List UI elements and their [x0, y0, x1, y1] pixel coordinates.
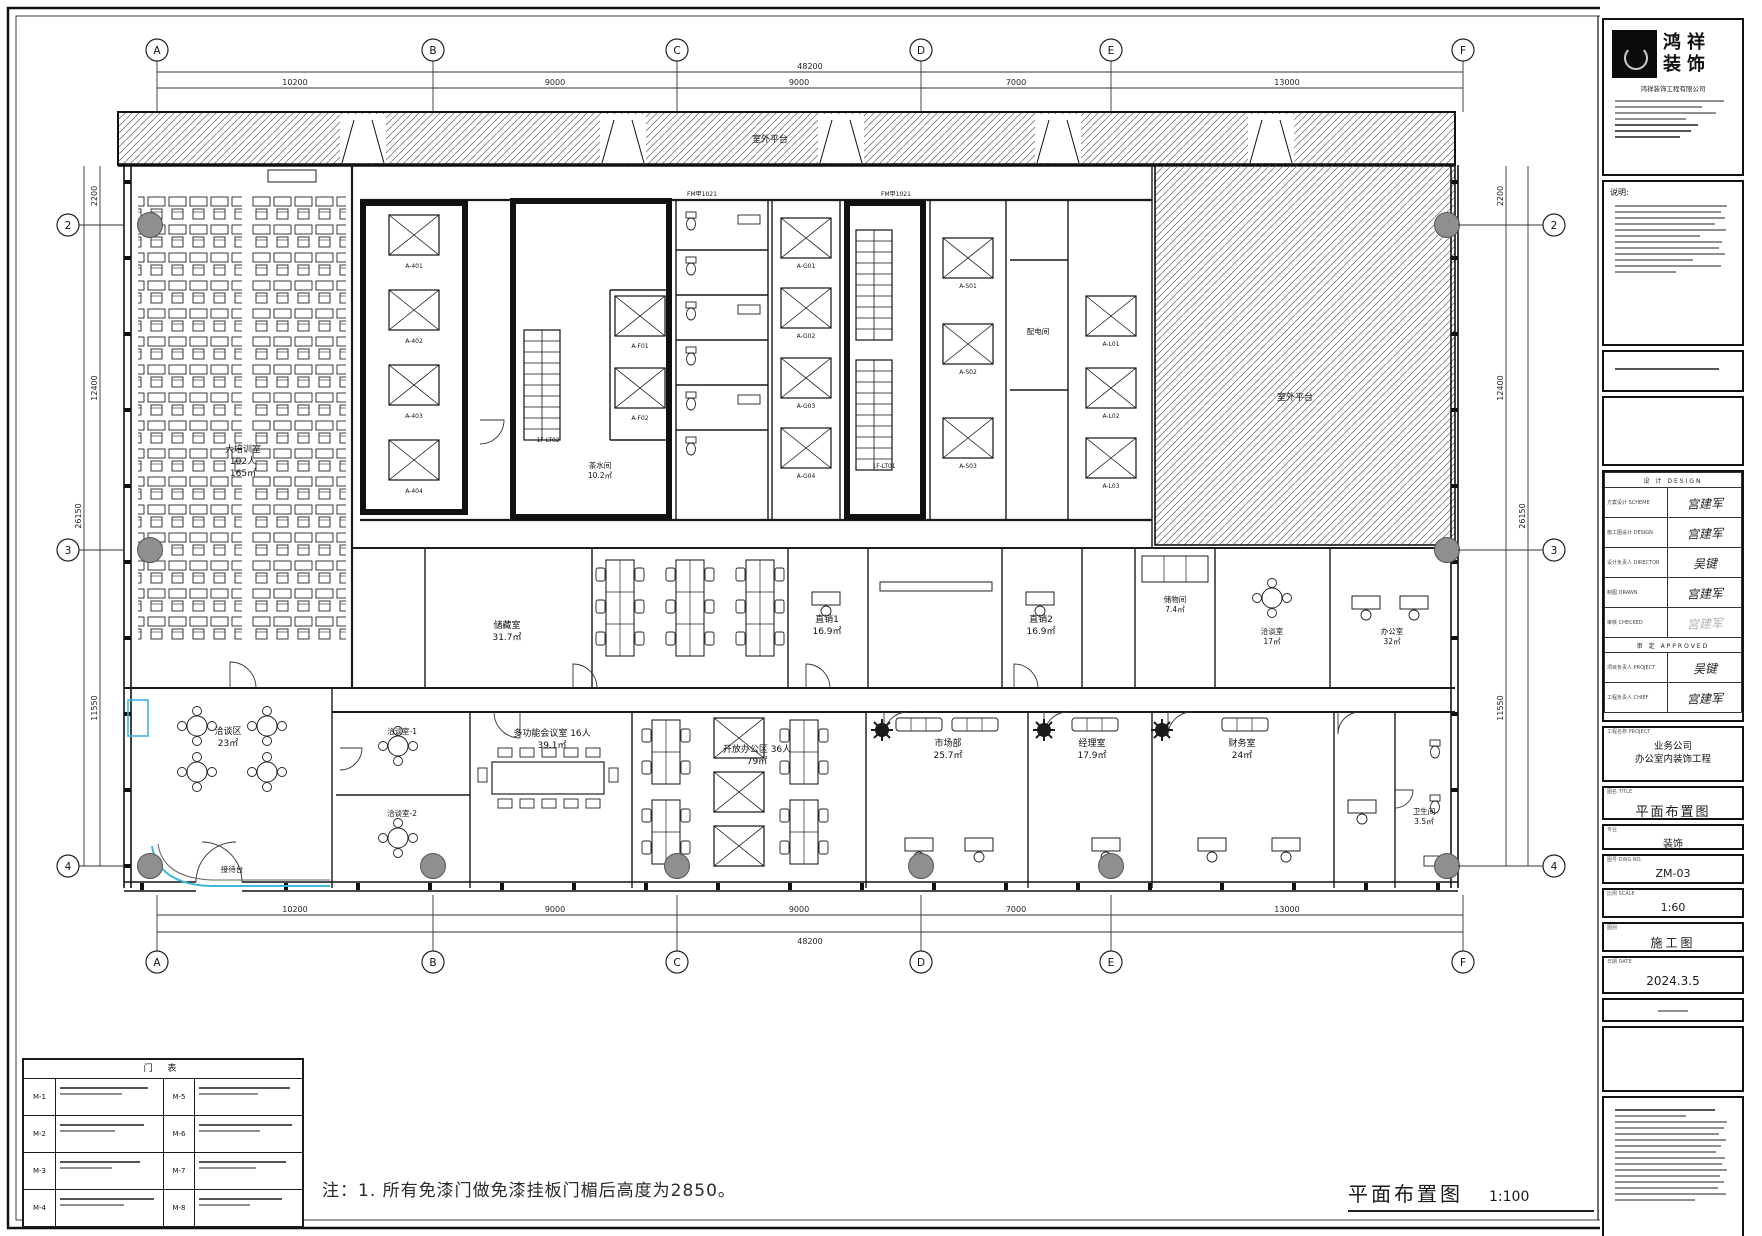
project-name-block: 工程名称 PROJECT 业务公司 办公室内装饰工程	[1602, 726, 1744, 782]
field-label: 比例 SCALE	[1607, 892, 1635, 897]
stamp-strip	[1602, 350, 1744, 392]
signature: 宫建军	[1667, 606, 1742, 639]
svg-text:79㎡: 79㎡	[747, 756, 767, 767]
label-lt02: 1F-LT02	[536, 437, 559, 444]
signature: 吴键	[1667, 651, 1742, 684]
label-storeroom: 储物间	[1164, 594, 1187, 604]
svg-text:9000: 9000	[545, 78, 565, 87]
field-label: 图号 DWG NO.	[1607, 858, 1642, 863]
door-desc	[195, 1190, 302, 1226]
table-row: M-2 M-6	[24, 1116, 302, 1153]
grid-label-c: C	[673, 45, 680, 57]
svg-text:9000: 9000	[545, 905, 565, 914]
sig-label: 审核 CHECKED	[1605, 608, 1668, 638]
terrace-right	[1155, 165, 1455, 545]
label-meet2: 洽谈室-2	[387, 808, 417, 818]
grid-label-b: B	[429, 45, 436, 57]
label-meet1: 洽谈室-1	[387, 726, 417, 736]
field-specialty: 专业 装饰	[1602, 824, 1744, 850]
svg-text:13000: 13000	[1274, 905, 1299, 914]
svg-text:48200: 48200	[797, 937, 822, 946]
label-lounge: 洽谈区	[214, 725, 241, 737]
label-wc: 卫生间	[1413, 806, 1436, 816]
svg-text:A-F01: A-F01	[631, 343, 648, 350]
door-code: M-2	[24, 1116, 56, 1152]
table-row: M-4 M-8	[24, 1190, 302, 1226]
svg-text:A-S03: A-S03	[959, 463, 977, 470]
door-desc	[56, 1190, 164, 1226]
sig-label: 设计负责人 DIRECTOR	[1605, 548, 1668, 578]
general-note: 注：1. 所有免漆门做免漆挂板门楣后高度为2850。	[322, 1176, 736, 1201]
svg-text:32㎡: 32㎡	[1383, 637, 1401, 646]
signature: 吴键	[1667, 546, 1742, 579]
svg-text:7.4㎡: 7.4㎡	[1165, 605, 1185, 614]
field-drawing-title: 图名 TITLE 平面布置图	[1602, 786, 1744, 820]
svg-text:10200: 10200	[282, 905, 307, 914]
grid-label-2: 2	[65, 220, 72, 232]
grid-label-e2: E	[1108, 957, 1115, 969]
open-office-furniture	[642, 718, 828, 866]
project-name-line1: 业务公司	[1604, 740, 1742, 753]
door-code: M-8	[164, 1190, 196, 1226]
grid-label-f: F	[1460, 45, 1466, 57]
dims-left: 2200 12400 11550 26150	[74, 186, 99, 721]
svg-text:25.7㎡: 25.7㎡	[933, 750, 962, 761]
svg-text:39.1㎡: 39.1㎡	[537, 740, 566, 751]
svg-text:3.5㎡: 3.5㎡	[1414, 817, 1434, 826]
meeting-room-furniture	[478, 748, 618, 808]
svg-text:31.7㎡: 31.7㎡	[492, 632, 521, 643]
mid-band-furniture	[596, 556, 1428, 656]
signature: 宫建军	[1667, 576, 1742, 609]
svg-text:165㎡: 165㎡	[230, 468, 256, 479]
dims-right: 2200 12400 11550 26150	[1496, 186, 1527, 721]
field-category: 图别 施工图	[1602, 922, 1744, 952]
svg-text:A-G01: A-G01	[797, 263, 816, 270]
door-desc	[56, 1079, 164, 1115]
grid-bubbles-bottom	[146, 951, 1474, 973]
label-roof-terrace: 室外平台	[1277, 391, 1313, 403]
label-storage: 储藏室	[493, 619, 520, 631]
svg-text:A-402: A-402	[405, 338, 423, 345]
table-row: M-3 M-7	[24, 1153, 302, 1190]
svg-text:10.2㎡: 10.2㎡	[588, 471, 613, 480]
svg-text:26150: 26150	[74, 503, 83, 528]
svg-text:A-G03: A-G03	[797, 403, 816, 410]
field-label: 日期 DATE	[1607, 960, 1632, 965]
door-schedule-table: 门 表 M-1 M-5 M-2 M-6 M-3 M-7 M-4 M-8	[22, 1058, 304, 1228]
door-code: M-5	[164, 1079, 196, 1115]
sheet-scale: 1:100	[1489, 1189, 1529, 1205]
grid-bubbles-top	[146, 39, 1474, 61]
field-label: 工程名称 PROJECT	[1607, 730, 1650, 735]
grid-label-b2: B	[429, 957, 436, 969]
project-name-line2: 办公室内装饰工程	[1604, 753, 1742, 766]
svg-text:102人: 102人	[230, 456, 256, 467]
svg-text:26150: 26150	[1518, 503, 1527, 528]
door-desc	[195, 1153, 302, 1189]
field-label: 图别	[1607, 926, 1617, 931]
label-open-office: 开放办公区 36人	[723, 743, 791, 755]
svg-text:7000: 7000	[1006, 78, 1026, 87]
brand-name: 鸿祥 装饰	[1663, 32, 1711, 76]
dims-top: 48200 10200 9000 9000 7000 13000	[282, 62, 1299, 87]
svg-text:17.9㎡: 17.9㎡	[1077, 750, 1106, 761]
label-tea: 茶水间	[589, 460, 612, 470]
blank-block	[1602, 1026, 1744, 1092]
svg-text:23㎡: 23㎡	[218, 738, 238, 749]
svg-text:16.9㎡: 16.9㎡	[812, 626, 841, 637]
svg-text:11550: 11550	[1496, 695, 1505, 720]
table-row: M-1 M-5	[24, 1079, 302, 1116]
label-zx2: 直销2	[1029, 613, 1053, 625]
svg-text:17㎡: 17㎡	[1263, 637, 1281, 646]
grid-label-3: 3	[65, 545, 72, 557]
svg-text:9000: 9000	[789, 905, 809, 914]
svg-text:2200: 2200	[90, 186, 99, 206]
sheet-title: 平面布置图 1:100	[1348, 1178, 1594, 1212]
label-talk17: 洽谈室	[1261, 626, 1284, 636]
label-fm1: FM甲1021	[687, 191, 717, 198]
svg-text:12400: 12400	[1496, 375, 1505, 400]
grid-label-e: E	[1108, 45, 1115, 57]
label-reception: 接待台	[221, 864, 244, 874]
door-desc	[195, 1079, 302, 1115]
training-room-desks	[138, 170, 346, 644]
approval-blank	[1602, 396, 1744, 466]
svg-text:A-L01: A-L01	[1102, 341, 1119, 348]
grid-label-3r: 3	[1551, 545, 1558, 557]
label-multifunction: 多功能会议室 16人	[513, 727, 590, 739]
svg-text:10200: 10200	[282, 78, 307, 87]
label-zx1: 直销1	[815, 613, 839, 625]
door-desc	[56, 1116, 164, 1152]
field-revision	[1602, 998, 1744, 1022]
svg-text:48200: 48200	[797, 62, 822, 71]
svg-text:9000: 9000	[789, 78, 809, 87]
notes-header: 说明:	[1604, 182, 1742, 198]
stairs	[524, 230, 892, 470]
grid-label-c2: C	[673, 957, 680, 969]
svg-text:A-G02: A-G02	[797, 333, 816, 340]
signature: 宫建军	[1667, 516, 1742, 549]
svg-text:A-G04: A-G04	[797, 473, 816, 480]
field-scale: 比例 SCALE 1:60	[1602, 888, 1744, 918]
door-code: M-6	[164, 1116, 196, 1152]
field-value: 施工图	[1604, 924, 1742, 951]
svg-text:A-S01: A-S01	[959, 283, 977, 290]
svg-text:16.9㎡: 16.9㎡	[1026, 626, 1055, 637]
label-market: 市场部	[934, 737, 961, 749]
grid-label-f2: F	[1460, 957, 1466, 969]
svg-text:A-403: A-403	[405, 413, 423, 420]
company-address	[1604, 93, 1742, 148]
field-value: 装饰	[1604, 826, 1742, 850]
door-desc	[195, 1116, 302, 1152]
grid-label-d2: D	[917, 957, 925, 969]
door-desc	[56, 1153, 164, 1189]
svg-text:13000: 13000	[1274, 78, 1299, 87]
label-power: 配电间	[1027, 326, 1050, 336]
svg-text:A-401: A-401	[405, 263, 423, 270]
signature: 宫建军	[1667, 681, 1742, 714]
company-logo-icon	[1612, 30, 1657, 78]
label-terrace: 室外平台	[752, 133, 788, 145]
svg-text:7000: 7000	[1006, 905, 1026, 914]
svg-text:A-404: A-404	[405, 488, 423, 495]
field-date: 日期 DATE 2024.3.5	[1602, 956, 1744, 994]
lobby-furniture	[128, 700, 418, 886]
door-code: M-7	[164, 1153, 196, 1189]
disclaimer-block	[1602, 1096, 1744, 1236]
company-name: 鸿祥装饰工程有限公司	[1604, 83, 1742, 93]
logo-block: 鸿祥 装饰 鸿祥装饰工程有限公司	[1602, 18, 1744, 176]
svg-text:12400: 12400	[90, 375, 99, 400]
label-training: 大培训室	[225, 443, 261, 455]
grid-label-4r: 4	[1551, 861, 1558, 873]
sheet-title-text: 平面布置图	[1348, 1178, 1463, 1207]
sig-label: 制图 DRAWN	[1605, 578, 1668, 608]
drawing-sheet: A B C D E F 48200 10200 9000 9000 7000 1…	[0, 0, 1762, 1236]
floor-plan: A B C D E F 48200 10200 9000 9000 7000 1…	[0, 0, 1600, 1236]
room-labels: 室外平台 室外平台 大培训室 102人 165㎡ 储藏室 31.7㎡ 直销1 1…	[214, 133, 1313, 767]
label-finance: 财务室	[1228, 737, 1255, 749]
field-label: 专业	[1607, 828, 1617, 833]
svg-text:A-S02: A-S02	[959, 369, 977, 376]
sig-label: 工程负责人 CHIEF	[1605, 683, 1668, 713]
door-code: M-1	[24, 1079, 56, 1115]
grid-left	[79, 166, 124, 866]
door-code: M-3	[24, 1153, 56, 1189]
door-code: M-4	[24, 1190, 56, 1226]
label-office32: 办公室	[1381, 626, 1404, 636]
grid-label-2r: 2	[1551, 220, 1558, 232]
sig-header: 设 计 DESIGN	[1605, 473, 1742, 488]
label-fm2: FM甲1021	[881, 191, 911, 198]
svg-text:24㎡: 24㎡	[1232, 750, 1252, 761]
sig-label: 项目负责人 PROJECT	[1605, 653, 1668, 683]
field-label: 图名 TITLE	[1607, 790, 1632, 795]
grid-label-a: A	[153, 45, 161, 57]
svg-text:11550: 11550	[90, 695, 99, 720]
label-manager: 经理室	[1078, 737, 1105, 749]
sig-header: 审 定 APPROVED	[1605, 638, 1742, 653]
grid-label-d: D	[917, 45, 925, 57]
svg-text:A-F02: A-F02	[631, 415, 648, 422]
title-block: 鸿祥 装饰 鸿祥装饰工程有限公司 说明: 设 计 DESIGN	[1602, 18, 1744, 1236]
notes-block: 说明:	[1602, 180, 1744, 346]
signature-table: 设 计 DESIGN 方案设计 SCHEME 宫建军 施工图设计 DESIGN …	[1602, 470, 1744, 722]
svg-text:2200: 2200	[1496, 186, 1505, 206]
dims-bottom: 10200 9000 9000 7000 13000 48200	[282, 905, 1299, 946]
signature: 宫建军	[1667, 486, 1742, 519]
grid-label-a2: A	[153, 957, 161, 969]
svg-text:A-L03: A-L03	[1102, 483, 1119, 490]
core-cells	[389, 215, 1136, 480]
field-drawing-no: 图号 DWG NO. ZM-03	[1602, 854, 1744, 884]
sig-label: 方案设计 SCHEME	[1605, 488, 1668, 518]
label-lt01: 1F-LT01	[872, 463, 895, 470]
grid-right	[1458, 166, 1543, 866]
door-schedule-title: 门 表	[24, 1060, 302, 1079]
grid-label-4: 4	[65, 861, 72, 873]
sig-label: 施工图设计 DESIGN	[1605, 518, 1668, 548]
svg-text:A-L02: A-L02	[1102, 413, 1119, 420]
